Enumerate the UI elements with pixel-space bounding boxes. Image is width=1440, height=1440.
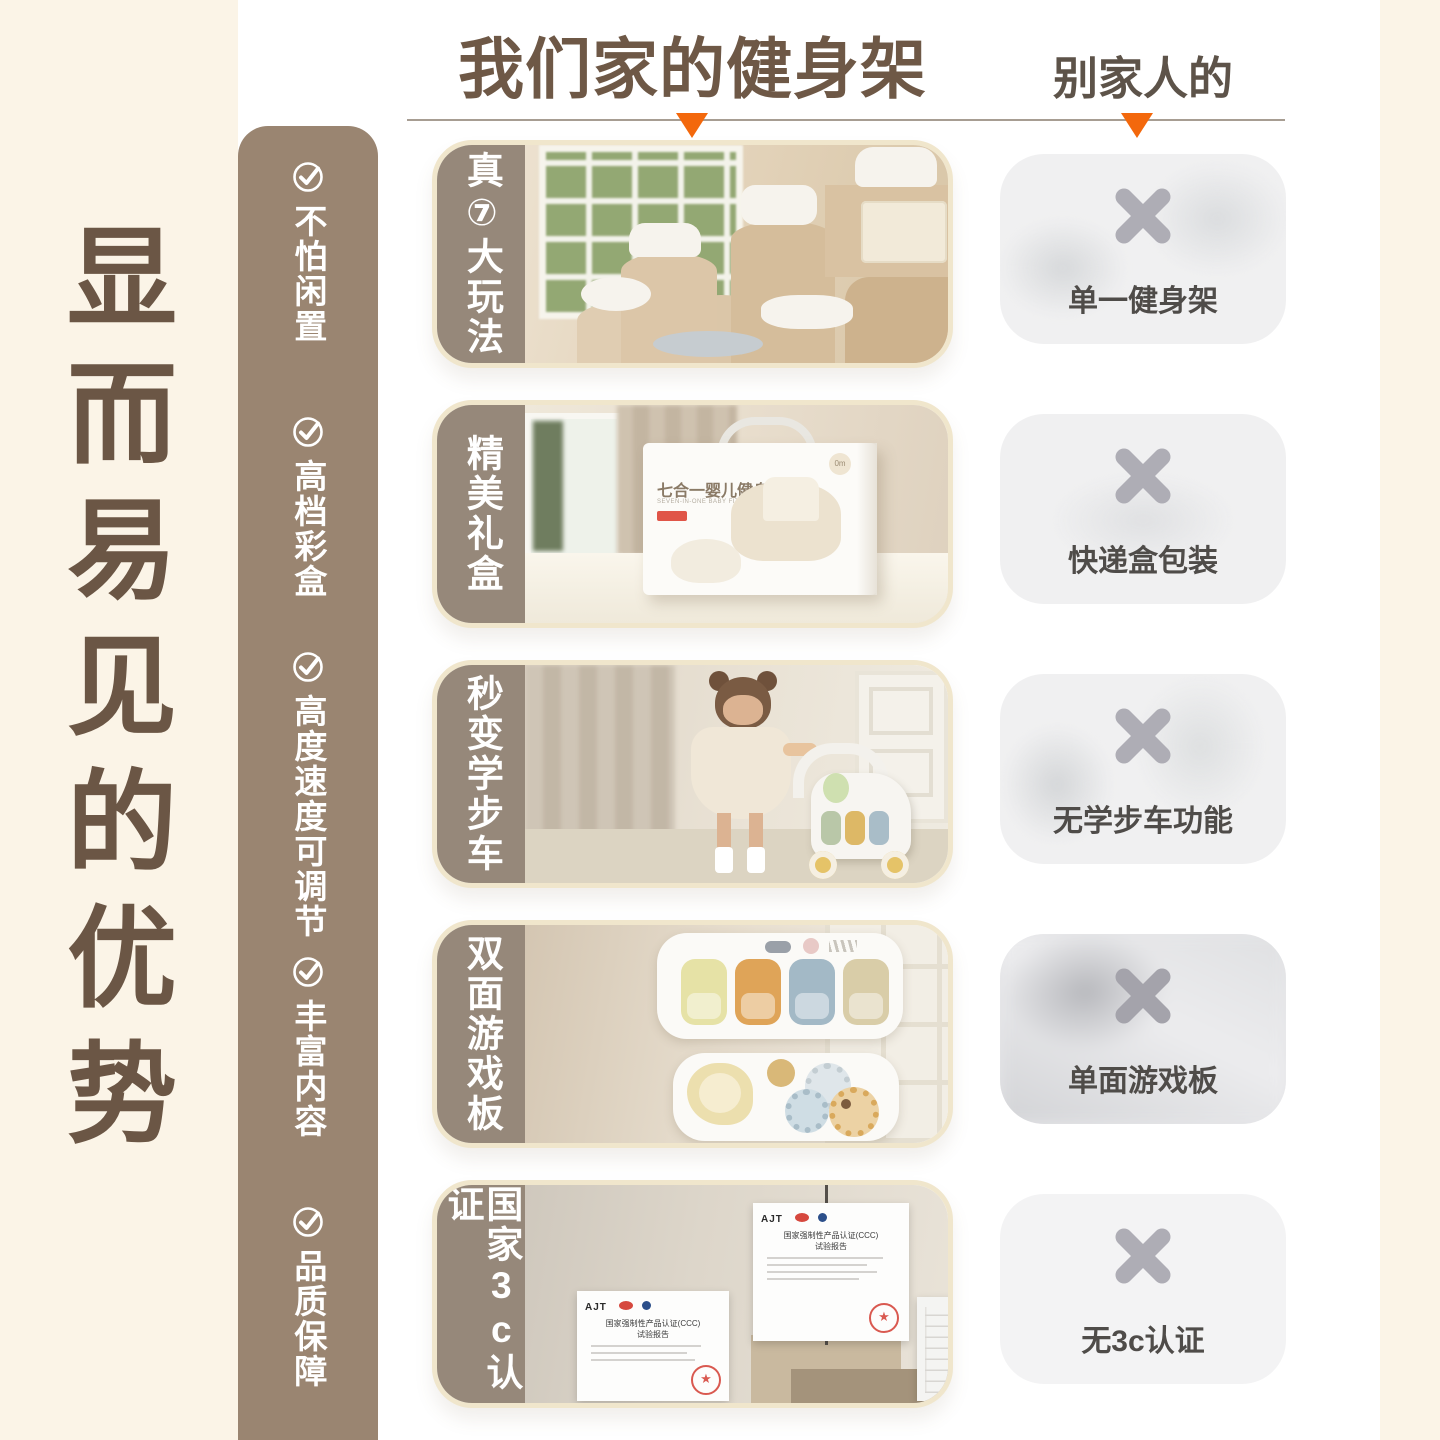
con-caption: 无3c认证: [1000, 1316, 1286, 1360]
x-mark-icon: [1107, 1220, 1179, 1292]
row-label: 秒变学步车: [462, 674, 501, 874]
certificate-card: AJT 国家强制性产品认证(CCC) 试验报告 ★: [753, 1203, 909, 1341]
toy: [761, 295, 853, 329]
cnas-logo: [642, 1301, 651, 1310]
photo-product-display: [525, 145, 948, 363]
x-mark-icon: [1107, 960, 1179, 1032]
red-stamp: ★: [869, 1303, 899, 1333]
row-label-strip: 真⑦大玩法: [437, 145, 525, 363]
box-side-shade: [857, 443, 877, 595]
round-button: [803, 938, 819, 954]
window-trees: [533, 421, 563, 551]
pro-card: 七合一婴儿健身架 SEVEN-IN-ONE BABY FITNESS GYM 0…: [432, 400, 953, 628]
girl-dress: [691, 727, 791, 819]
con-caption: 单面游戏板: [1000, 1056, 1286, 1100]
con-caption: 快递盒包装: [1000, 536, 1286, 580]
x-mark-icon: [1107, 440, 1179, 512]
comparison-row: 真⑦大玩法 单一健身架: [0, 140, 1440, 368]
speaker-grill: [829, 940, 857, 952]
cnas-logo: [818, 1213, 827, 1222]
cert-title: 国家强制性产品认证(CCC): [585, 1319, 721, 1329]
cert-line: [591, 1345, 701, 1347]
comparison-row: 双面游戏板 单面游戏板: [0, 920, 1440, 1148]
pro-card: 双面游戏板: [432, 920, 953, 1148]
walker-key: [845, 811, 865, 845]
podium: [845, 277, 948, 363]
arrow-down-icon: [676, 113, 708, 138]
photo-gift-box: 七合一婴儿健身架 SEVEN-IN-ONE BABY FITNESS GYM 0…: [525, 405, 948, 623]
certificate-card: ★: [917, 1297, 948, 1401]
toggle-button: [765, 941, 791, 953]
walker-wheel: [809, 851, 837, 879]
x-mark-icon: [1107, 700, 1179, 772]
frog-pendant: [823, 773, 849, 803]
cert-line: [591, 1359, 695, 1361]
game-panel-bottom: [673, 1053, 899, 1141]
box-red-tag: [657, 511, 687, 521]
photo-certificates: AJT 国家强制性产品认证(CCC) 试验报告 ★ AJT 国家强制性产品认证(…: [525, 1185, 948, 1403]
row-label-strip: 国家3c认证: [437, 1185, 525, 1403]
row-label-strip: 精美礼盒: [437, 405, 525, 623]
photo-game-boards: [525, 925, 948, 1143]
con-caption: 单一健身架: [1000, 276, 1286, 320]
pro-card: AJT 国家强制性产品认证(CCC) 试验报告 ★ AJT 国家强制性产品认证(…: [432, 1180, 953, 1408]
row-label-strip: 双面游戏板: [437, 925, 525, 1143]
cabinet-panel: [869, 687, 933, 735]
cert-title: 国家强制性产品认证(CCC): [761, 1231, 901, 1241]
gear-center: [841, 1099, 851, 1109]
girl-sock: [715, 847, 733, 873]
red-stamp: ★: [691, 1365, 721, 1395]
report-table: [925, 1307, 948, 1393]
pro-card: 真⑦大玩法: [432, 140, 953, 368]
row-label: 真⑦大玩法: [462, 151, 501, 357]
gear-toy: [785, 1089, 829, 1133]
gear-toy: [829, 1087, 879, 1137]
cert-line: [767, 1257, 883, 1259]
round-knob: [767, 1059, 795, 1087]
box-art: [763, 477, 819, 521]
photo-toddler-walker: [525, 665, 948, 883]
row-label: 双面游戏板: [462, 934, 501, 1134]
con-card: 单一健身架: [1000, 154, 1286, 344]
row-label-strip: 秒变学步车: [437, 665, 525, 883]
column-header-theirs: 别家人的: [1000, 42, 1286, 107]
certificate-card: AJT 国家强制性产品认证(CCC) 试验报告 ★: [577, 1291, 729, 1401]
piano-key-tan: [843, 959, 889, 1025]
arrow-down-icon: [1121, 113, 1153, 138]
cert-line: [767, 1278, 859, 1280]
toy-car: [629, 223, 701, 257]
con-caption: 无学步车功能: [1000, 796, 1286, 840]
walker-wheel: [881, 851, 909, 879]
box-art: [671, 539, 741, 583]
cert-logo: AJT: [761, 1214, 783, 1225]
rocker-arc: [653, 331, 763, 357]
cert-line: [767, 1264, 867, 1266]
toy-gym: [741, 185, 817, 225]
walker-key: [821, 811, 841, 845]
cert-subtitle: 试验报告: [761, 1241, 901, 1252]
promo-page: 显而易见的优势 不怕闲置 高档彩盒 高度速度可调节 丰富内容 品质保障 我们家的…: [0, 0, 1440, 1440]
comparison-row: 七合一婴儿健身架 SEVEN-IN-ONE BABY FITNESS GYM 0…: [0, 400, 1440, 628]
cert-line: [591, 1352, 687, 1354]
box-age-badge: 0m: [829, 453, 851, 475]
con-card: 快递盒包装: [1000, 414, 1286, 604]
toy-car: [855, 147, 937, 187]
comparison-row: AJT 国家强制性产品认证(CCC) 试验报告 ★ AJT 国家强制性产品认证(…: [0, 1180, 1440, 1408]
snail-shell: [699, 1073, 741, 1113]
cert-line: [767, 1271, 877, 1273]
row-label: 精美礼盒: [462, 434, 501, 594]
piano-key-orange: [735, 959, 781, 1025]
girl-sock: [747, 847, 765, 873]
cert-logo: AJT: [585, 1302, 607, 1313]
x-mark-icon: [1107, 180, 1179, 252]
row-label: 国家3c认证: [442, 1185, 520, 1403]
con-card: 无3c认证: [1000, 1194, 1286, 1384]
walker-key: [869, 811, 889, 845]
game-panel-top: [657, 933, 903, 1039]
gift-box-small: [861, 201, 947, 263]
cma-logo: [795, 1213, 809, 1222]
piano-key-blue: [789, 959, 835, 1025]
piano-key-yellow: [681, 959, 727, 1025]
cert-subtitle: 试验报告: [585, 1329, 721, 1340]
con-card: 无学步车功能: [1000, 674, 1286, 864]
girl-face: [723, 695, 763, 725]
comparison-row: 秒变学步车 无学步车功能: [0, 660, 1440, 888]
toy: [581, 277, 651, 311]
column-header-ours: 我们家的健身架: [432, 16, 953, 112]
pro-card: 秒变学步车: [432, 660, 953, 888]
cma-logo: [619, 1301, 633, 1310]
con-card: 单面游戏板: [1000, 934, 1286, 1124]
header-divider: [407, 119, 1285, 121]
gift-box: 七合一婴儿健身架 SEVEN-IN-ONE BABY FITNESS GYM 0…: [643, 443, 877, 595]
